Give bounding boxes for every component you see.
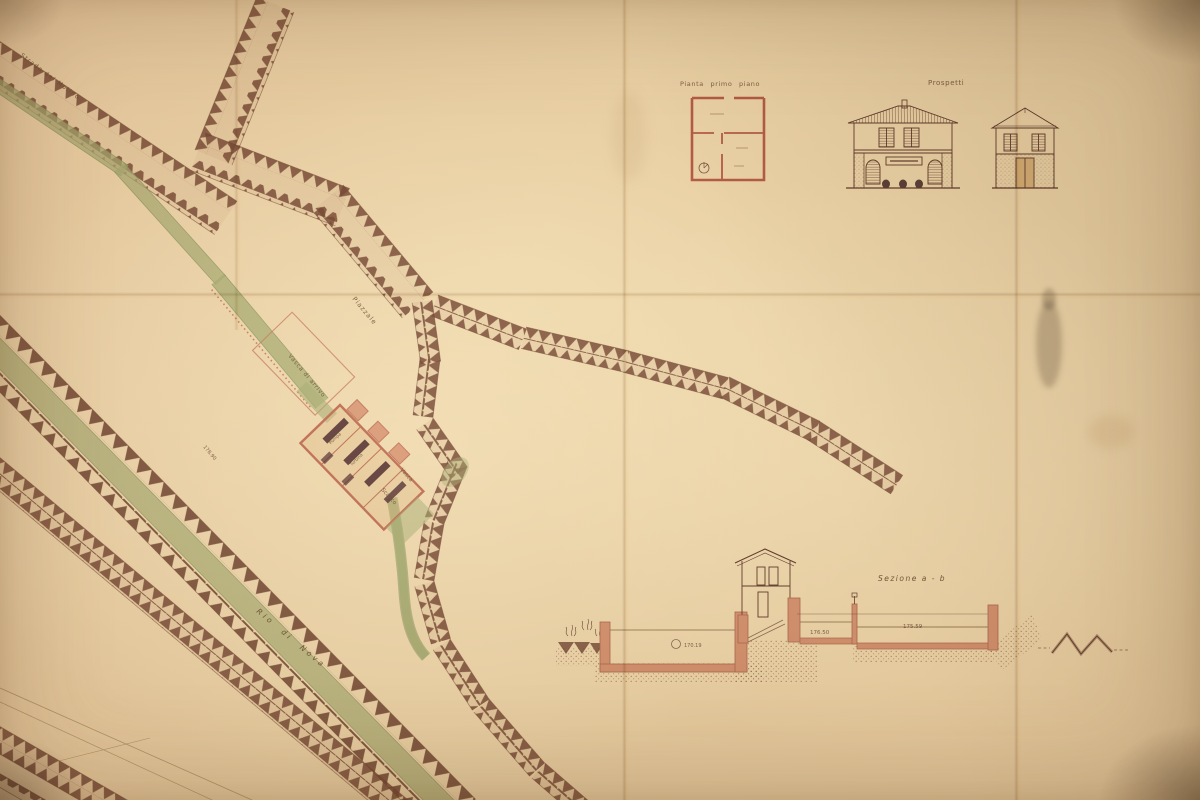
road-band (532, 763, 598, 800)
road-band (807, 421, 903, 494)
quota-lower-channel: 175.59 (903, 624, 923, 630)
scrub-tufts (566, 619, 601, 636)
section-building (735, 549, 800, 643)
road-band (433, 639, 489, 710)
pencil-lines (0, 688, 252, 800)
road-band (414, 521, 444, 582)
quota-upper-channel: 176.50 (810, 630, 830, 636)
road-band (0, 28, 237, 235)
road-band (474, 699, 545, 776)
section-drawing: 170.19 176.50 175.59 (556, 549, 1042, 682)
embankment-teeth (558, 642, 604, 654)
label-quota-piazzale: 178.90 (201, 444, 217, 461)
front-elevation (846, 100, 960, 189)
label-piazzale: Piazzale (350, 295, 378, 326)
floor-plan (692, 98, 764, 180)
ditch-profile (1038, 634, 1130, 654)
title-pianta: Pianta primo piano (680, 80, 760, 88)
road-band (413, 358, 440, 418)
road-band (719, 377, 819, 441)
title-prospetti: Prospetti (928, 79, 964, 87)
road-band (623, 351, 728, 399)
side-elevation (992, 108, 1058, 188)
drawing-sheet: Turbina Pompa Strada del Molino Vasca di… (0, 0, 1200, 800)
headrace-canal (0, 62, 328, 411)
road-band (521, 327, 629, 372)
title-sezione: Sezione a - b (878, 574, 946, 583)
road-band (430, 295, 527, 350)
road-band (312, 185, 433, 318)
quota-basin: 170.19 (684, 643, 702, 649)
map-photo: Turbina Pompa Strada del Molino Vasca di… (0, 0, 1200, 800)
road-band (415, 581, 451, 644)
